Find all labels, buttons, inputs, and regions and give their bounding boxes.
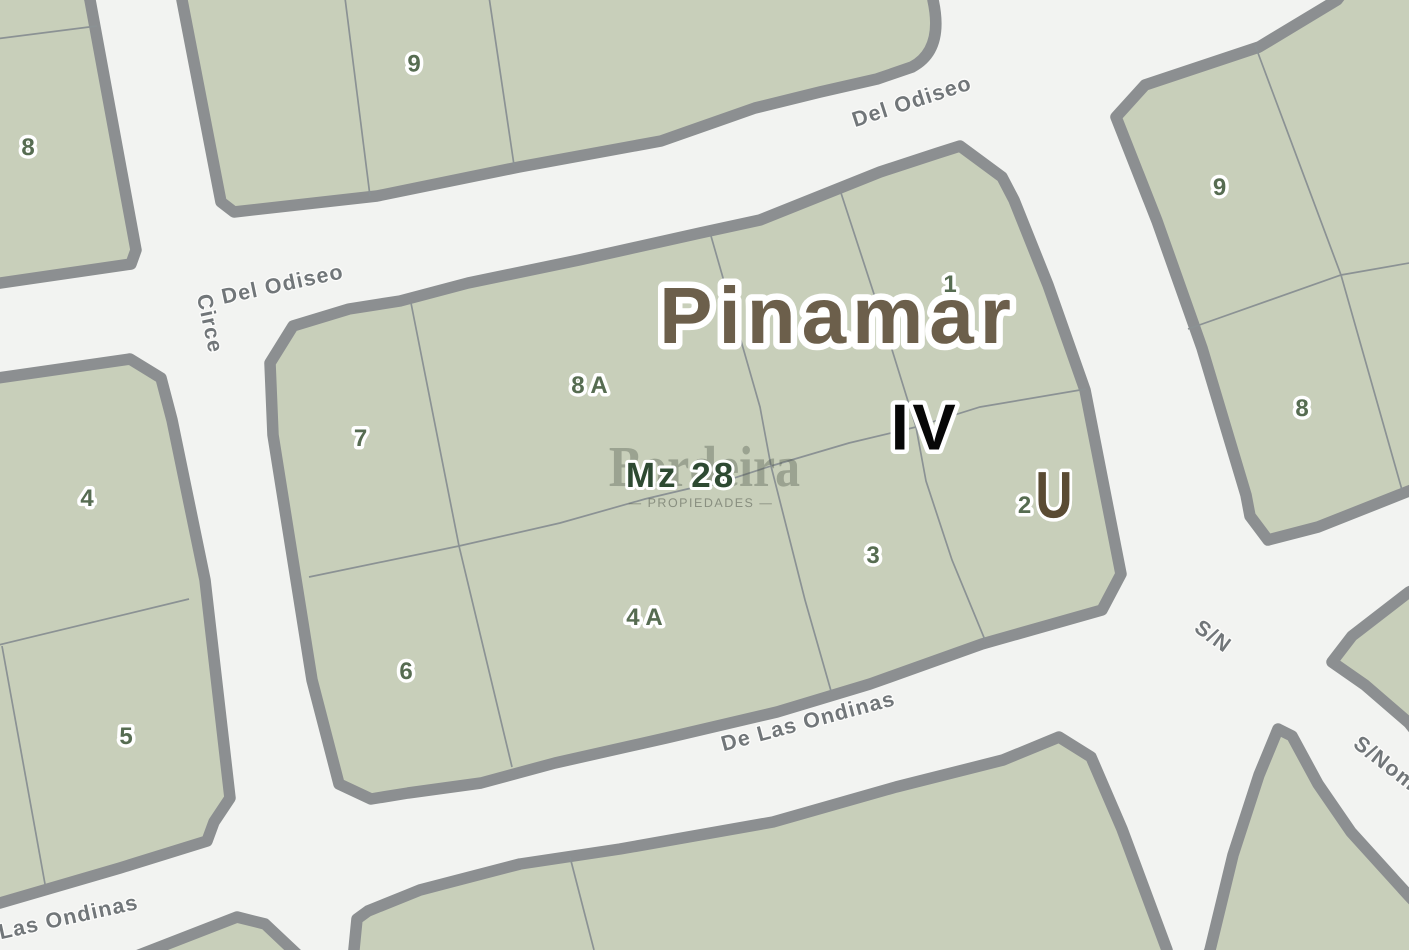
svg-text:— PROPIEDADES —: — PROPIEDADES — bbox=[629, 496, 774, 510]
svg-text:Mz 28: Mz 28 bbox=[626, 456, 736, 495]
svg-text:8: 8 bbox=[21, 134, 34, 161]
svg-text:7: 7 bbox=[354, 425, 367, 452]
svg-text:9: 9 bbox=[407, 51, 420, 78]
svg-text:4 A: 4 A bbox=[626, 604, 662, 631]
svg-text:2: 2 bbox=[1018, 492, 1031, 519]
svg-text:Pinamar: Pinamar bbox=[659, 271, 1017, 360]
svg-text:U: U bbox=[1035, 458, 1072, 532]
svg-text:4: 4 bbox=[80, 485, 94, 512]
svg-text:9: 9 bbox=[1213, 174, 1226, 201]
svg-text:6: 6 bbox=[399, 658, 412, 685]
svg-text:8: 8 bbox=[1295, 395, 1308, 422]
svg-text:5: 5 bbox=[119, 723, 132, 750]
svg-text:3: 3 bbox=[866, 542, 879, 569]
svg-text:IV: IV bbox=[891, 391, 959, 464]
svg-text:8 A: 8 A bbox=[571, 372, 607, 399]
